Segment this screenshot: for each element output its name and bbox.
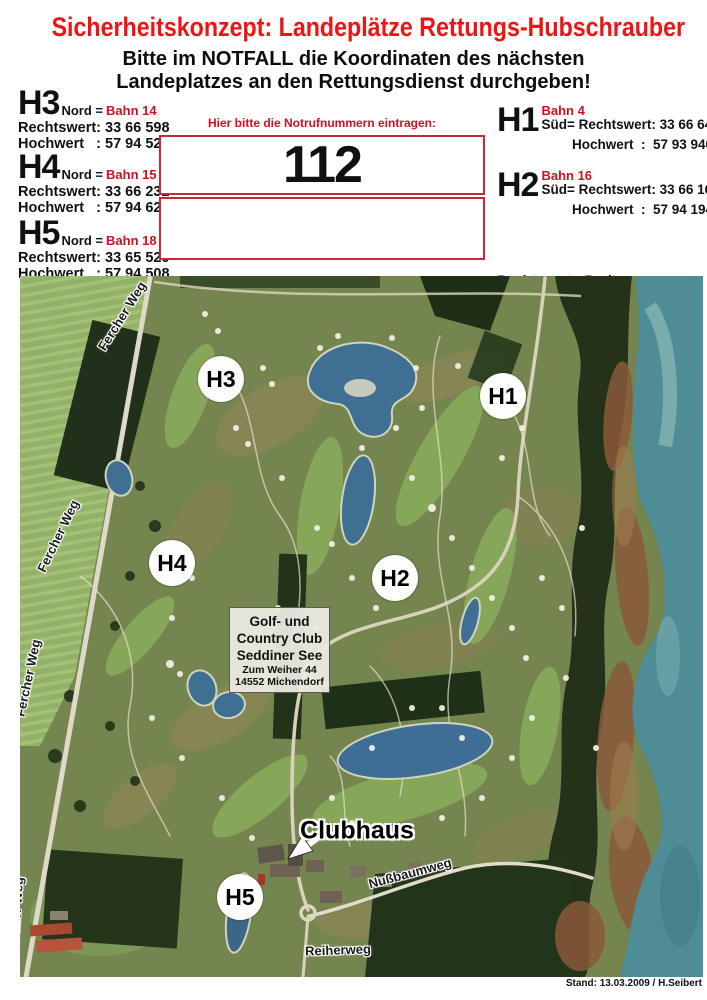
site-block-h3: H3 Nord = Bahn 14 Rechtswert: 33 66 598 … [18, 86, 170, 152]
site-bahn: Bahn 4 [541, 105, 707, 117]
emergency-number: 112 [283, 135, 361, 195]
site-hochwert: Hochwert : 57 94 194 [572, 202, 707, 217]
map-marker-h2: H2 [372, 555, 418, 601]
clubhaus-label: Clubhaus [300, 817, 414, 846]
page-title: Sicherheitskonzept: Landeplätze Rettungs… [0, 12, 707, 43]
emergency-number-box: 112 [159, 135, 485, 195]
site-rechtswert: Rechtswert: 33 66 232 [18, 184, 170, 200]
street-label-reiherweg: Reiherweg [305, 941, 371, 958]
map-marker-h3: H3 [198, 356, 244, 402]
site-block-h1: H1 Bahn 4 Süd= Rechtswert: 33 66 646 Hoc… [497, 103, 707, 152]
emergency-instruction: Hier bitte die Notrufnummern eintragen: [159, 116, 485, 130]
subtitle-line-1: Bitte im NOTFALL die Koordinaten des näc… [0, 48, 707, 71]
club-address-city: 14552 Michendorf [231, 676, 328, 688]
site-bahn: Bahn 14 [106, 104, 157, 117]
site-direction: Nord = [61, 104, 103, 117]
site-id: H5 [18, 216, 59, 250]
safety-concept-poster: Sicherheitskonzept: Landeplätze Rettungs… [0, 0, 707, 1000]
site-rechtswert: Rechtswert: 33 66 598 [18, 120, 170, 136]
club-address-street: Zum Weiher 44 [231, 664, 328, 676]
site-direction: Nord = [61, 168, 103, 181]
aerial-photo-artwork [20, 276, 703, 977]
aerial-map: H3 H1 H4 H2 H5 Fercher Weg Fercher Weg F… [20, 276, 703, 977]
map-marker-h4: H4 [149, 540, 195, 586]
site-bahn: Bahn 16 [541, 170, 707, 182]
site-direction: Nord = [61, 234, 103, 247]
club-info-box: Golf- und Country Club Seddiner See Zum … [229, 607, 330, 693]
site-id: H2 [497, 168, 538, 202]
site-id: H1 [497, 103, 538, 137]
site-rechtswert: Süd= Rechtswert: 33 66 646 [541, 117, 707, 132]
site-rechtswert: Süd= Rechtswert: 33 66 163 [541, 182, 707, 197]
site-block-h4: H4 Nord = Bahn 15 Rechtswert: 33 66 232 … [18, 150, 170, 216]
site-hochwert: Hochwert : 57 93 940 [572, 137, 707, 152]
map-marker-h5: H5 [217, 874, 263, 920]
site-bahn: Bahn 15 [106, 168, 157, 181]
site-bahn: Bahn 18 [106, 234, 157, 247]
club-name-line-3: Seddiner See [231, 647, 328, 664]
emergency-number-box-empty [159, 197, 485, 260]
site-block-h5: H5 Nord = Bahn 18 Rechtswert: 33 65 520 … [18, 216, 170, 282]
site-id: H4 [18, 150, 59, 184]
site-rechtswert: Rechtswert: 33 65 520 [18, 250, 170, 266]
club-name-line-1: Golf- und [231, 613, 328, 630]
club-name-line-2: Country Club [231, 630, 328, 647]
map-marker-h1: H1 [480, 373, 526, 419]
site-id: H3 [18, 86, 59, 120]
revision-note: Stand: 13.03.2009 / H.Seibert [566, 978, 702, 989]
site-block-h2: H2 Bahn 16 Süd= Rechtswert: 33 66 163 Ho… [497, 168, 707, 217]
